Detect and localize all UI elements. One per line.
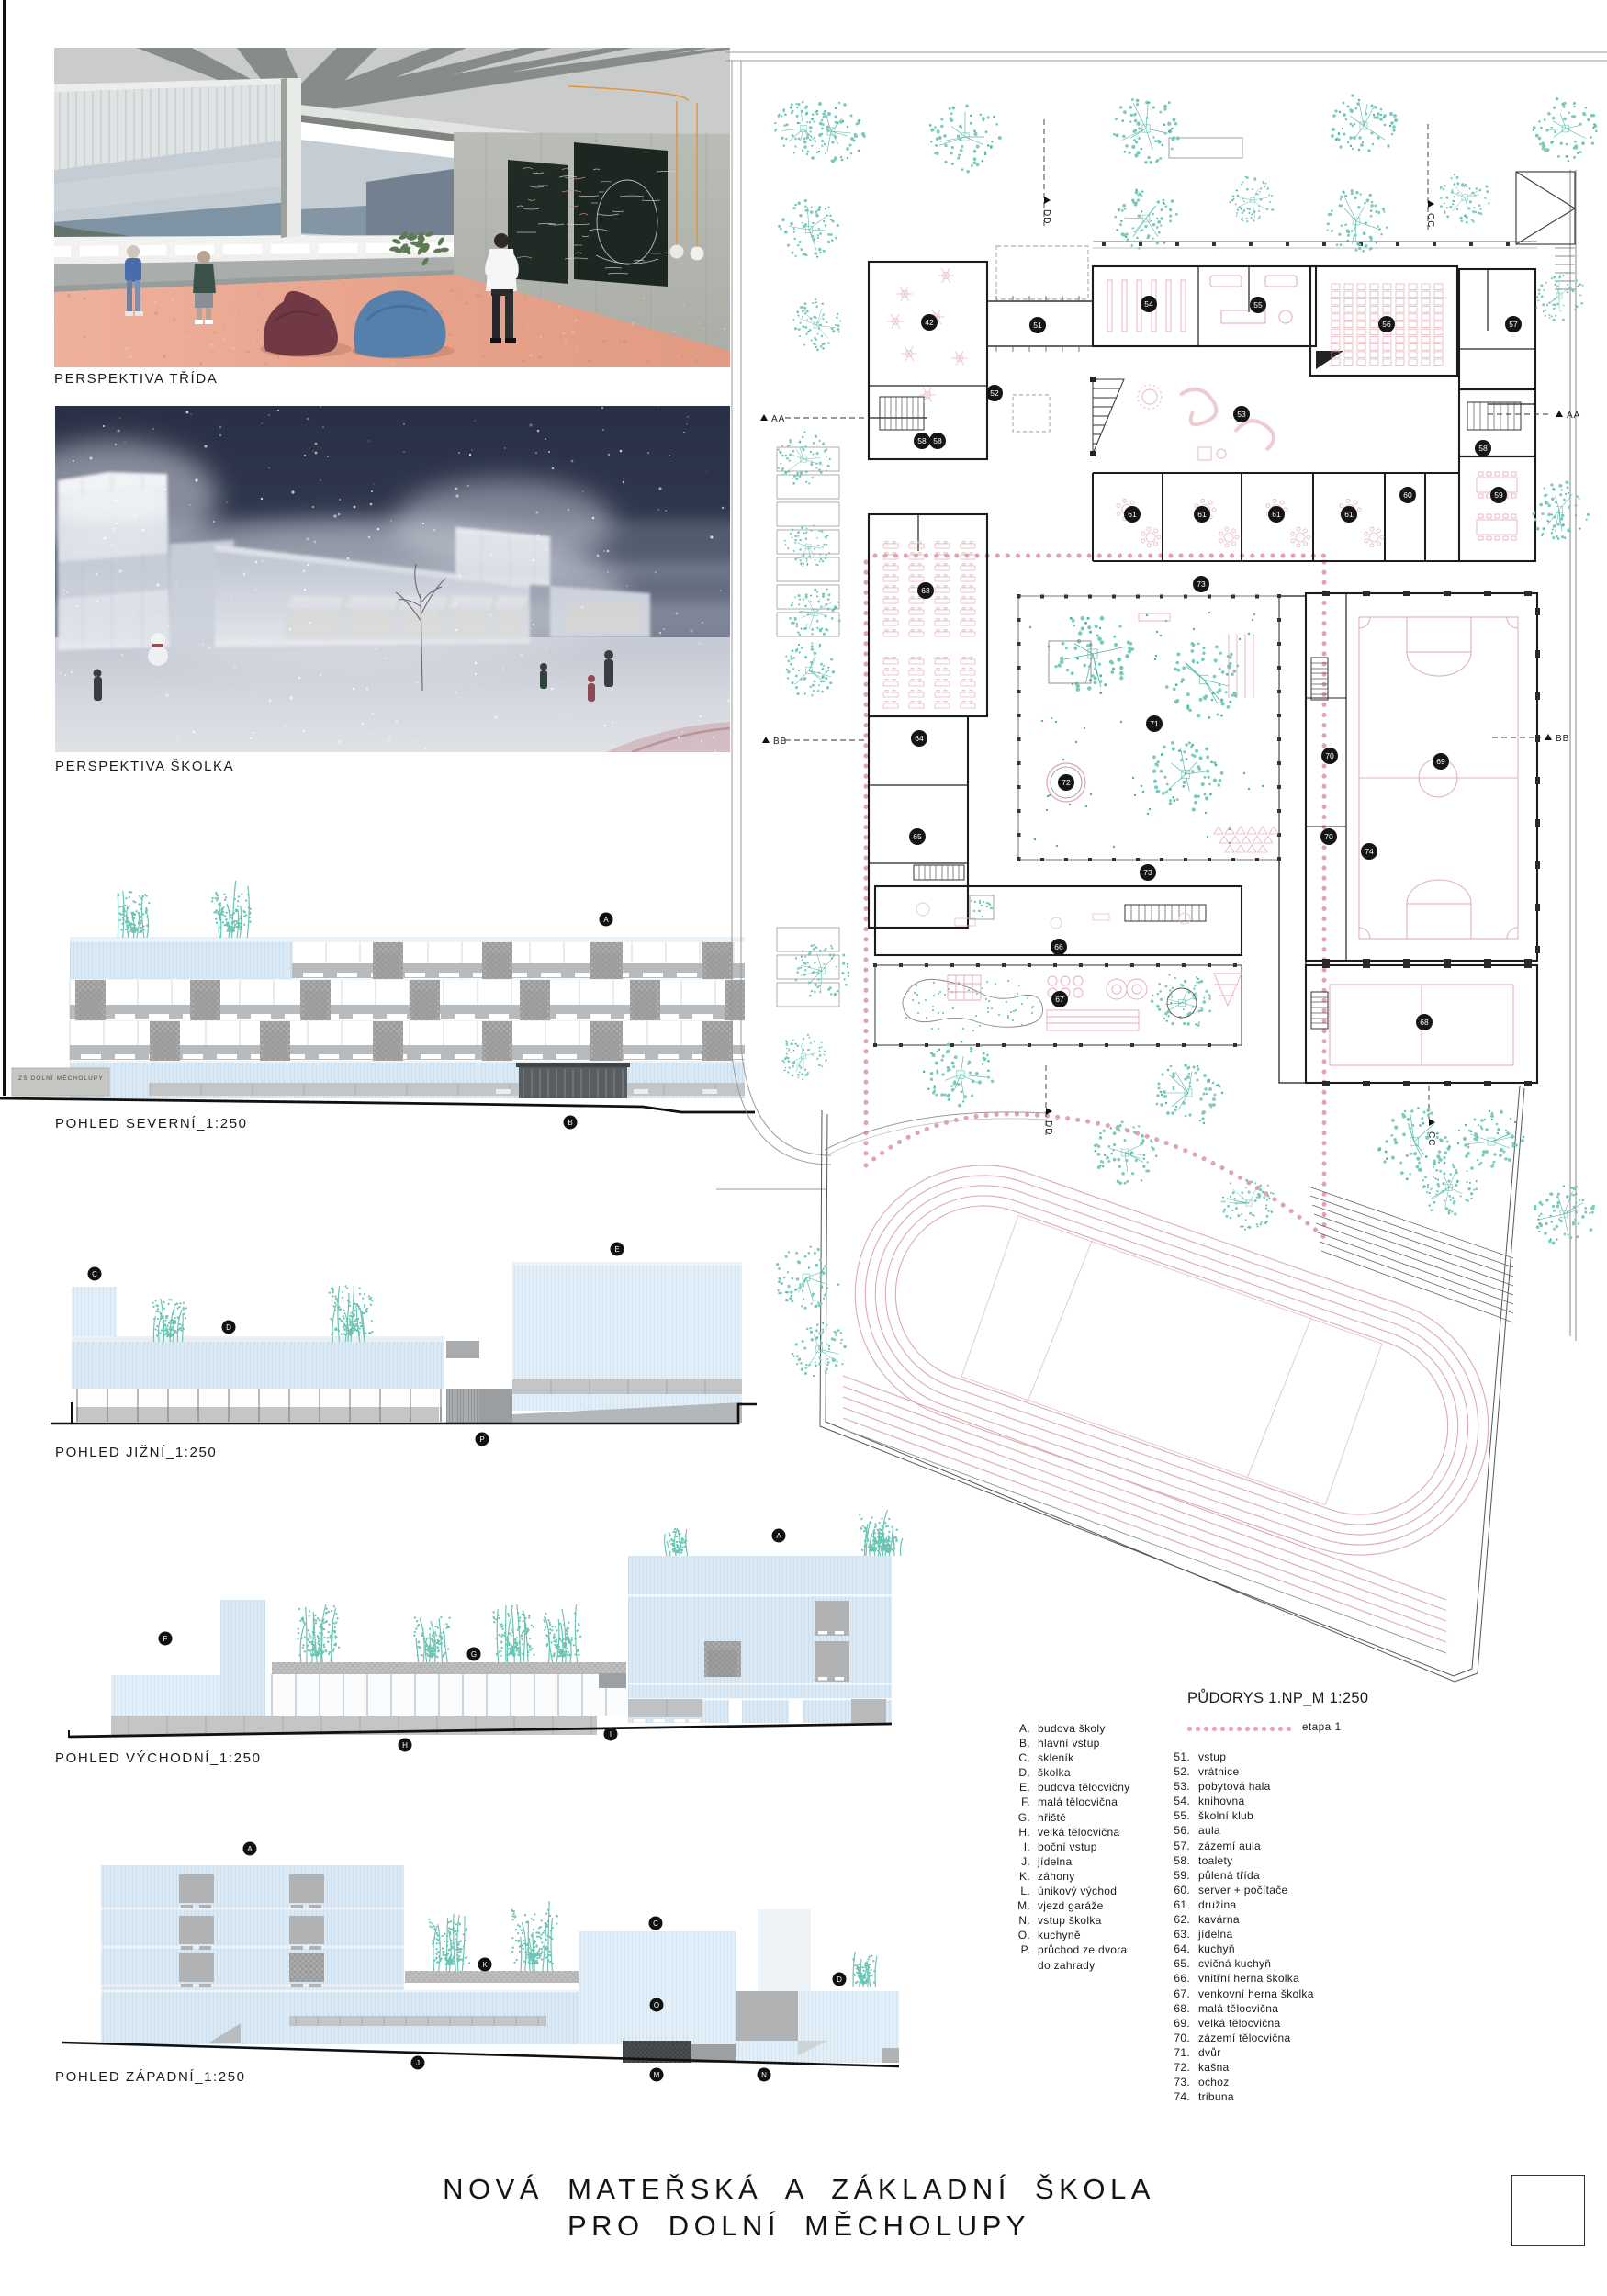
svg-text:C: C	[653, 1919, 658, 1928]
svg-text:BB: BB	[773, 737, 787, 747]
svg-text:H: H	[402, 1741, 408, 1750]
svg-text:F: F	[163, 1635, 168, 1643]
svg-text:D: D	[226, 1323, 231, 1332]
svg-text:DD: DD	[1041, 209, 1051, 224]
svg-text:C: C	[92, 1270, 97, 1278]
svg-text:M: M	[654, 2071, 660, 2079]
svg-text:O: O	[654, 2001, 659, 2009]
svg-text:AA: AA	[1567, 411, 1580, 421]
svg-text:A: A	[247, 1845, 253, 1853]
svg-text:CC: CC	[1425, 213, 1435, 228]
svg-text:J: J	[416, 2059, 420, 2067]
svg-text:G: G	[471, 1650, 477, 1659]
svg-text:K: K	[482, 1961, 488, 1969]
svg-text:BB: BB	[1556, 734, 1569, 744]
svg-text:I: I	[610, 1730, 612, 1739]
svg-text:P: P	[479, 1435, 484, 1444]
svg-text:AA: AA	[771, 414, 785, 424]
svg-text:E: E	[614, 1245, 619, 1254]
svg-text:D: D	[837, 1975, 842, 1984]
svg-text:N: N	[761, 2071, 767, 2079]
svg-text:B: B	[568, 1119, 572, 1127]
svg-text:ZŠ DOLNÍ MĚCHOLUPY: ZŠ DOLNÍ MĚCHOLUPY	[18, 1074, 104, 1082]
svg-text:A: A	[603, 916, 609, 924]
svg-text:DD: DD	[1043, 1120, 1053, 1135]
